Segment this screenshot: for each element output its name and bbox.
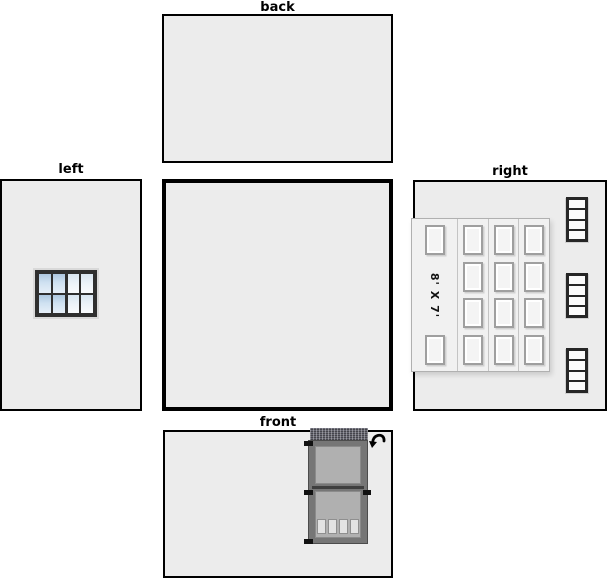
- window-sash-right: [68, 274, 94, 313]
- window-pane: [569, 276, 585, 284]
- door-header-texture: [310, 428, 368, 440]
- window-pane: [53, 295, 65, 314]
- entry-door[interactable]: [308, 440, 368, 544]
- garage-door-panel: [494, 298, 514, 328]
- window-pane: [81, 295, 93, 314]
- window-pane: [68, 274, 80, 293]
- window-pane: [39, 274, 51, 293]
- window-sash-left: [39, 274, 65, 313]
- window-pane: [569, 210, 585, 218]
- window-pane: [569, 297, 585, 305]
- garage-door-panel: [494, 225, 514, 255]
- window-pane: [569, 286, 585, 294]
- floor-panel[interactable]: [162, 179, 393, 411]
- garage-door-panel: [524, 225, 544, 255]
- left-wall-panel[interactable]: [0, 179, 142, 411]
- door-middle-rail: [312, 486, 364, 489]
- garage-door-panel: [463, 225, 483, 255]
- window-pane: [68, 295, 80, 314]
- front-wall-panel[interactable]: [163, 430, 393, 578]
- back-wall-panel[interactable]: [162, 14, 393, 163]
- garage-door-column-1: 8' X 7': [412, 219, 457, 371]
- door-knob: [363, 490, 371, 495]
- window-pane: [39, 295, 51, 314]
- right-wall-label: right: [413, 165, 607, 178]
- right-wall-panel[interactable]: 8' X 7': [413, 180, 607, 411]
- window-pane: [569, 221, 585, 229]
- garage-door-panel: [524, 262, 544, 292]
- window-pane: [569, 351, 585, 359]
- door-lower-panel: [315, 491, 361, 538]
- right-wall-window-top[interactable]: [566, 197, 588, 242]
- left-wall-label: left: [0, 163, 142, 176]
- garage-door-panel: [425, 225, 445, 255]
- door-hinge-top: [304, 441, 313, 446]
- door-swing-arrow-icon: [369, 430, 389, 448]
- right-wall-window-middle[interactable]: [566, 273, 588, 318]
- unfolded-walls-diagram: back left right front 8' X 7': [0, 0, 616, 586]
- window-pane: [569, 361, 585, 369]
- door-lites: [317, 519, 359, 534]
- garage-door[interactable]: 8' X 7': [411, 218, 550, 372]
- door-lite: [350, 519, 359, 534]
- garage-door-column-3: [488, 219, 519, 371]
- garage-door-panel: [524, 335, 544, 365]
- door-hinge-middle: [304, 490, 313, 495]
- garage-door-column-4: [518, 219, 549, 371]
- window-pane: [569, 382, 585, 390]
- window-pane: [569, 307, 585, 315]
- garage-door-panel: [425, 335, 445, 365]
- right-wall-window-bottom[interactable]: [566, 348, 588, 393]
- garage-door-panel: [494, 335, 514, 365]
- window-pane: [569, 231, 585, 239]
- left-wall-window[interactable]: [35, 270, 97, 317]
- garage-door-size: 8' X 7': [412, 255, 457, 335]
- garage-door-panel: [463, 335, 483, 365]
- back-wall-label: back: [162, 1, 393, 14]
- garage-door-panel: [463, 262, 483, 292]
- garage-door-column-2: [457, 219, 488, 371]
- window-pane: [569, 372, 585, 380]
- door-lite: [328, 519, 337, 534]
- garage-door-panel: [463, 298, 483, 328]
- window-pane: [569, 200, 585, 208]
- door-lite: [339, 519, 348, 534]
- window-pane: [53, 274, 65, 293]
- door-lite: [317, 519, 326, 534]
- door-hinge-bottom: [304, 539, 313, 544]
- garage-door-panel: [524, 298, 544, 328]
- window-pane: [81, 274, 93, 293]
- garage-door-panel: [494, 262, 514, 292]
- garage-door-size-label: 8' X 7': [428, 272, 441, 317]
- door-upper-panel: [315, 446, 361, 484]
